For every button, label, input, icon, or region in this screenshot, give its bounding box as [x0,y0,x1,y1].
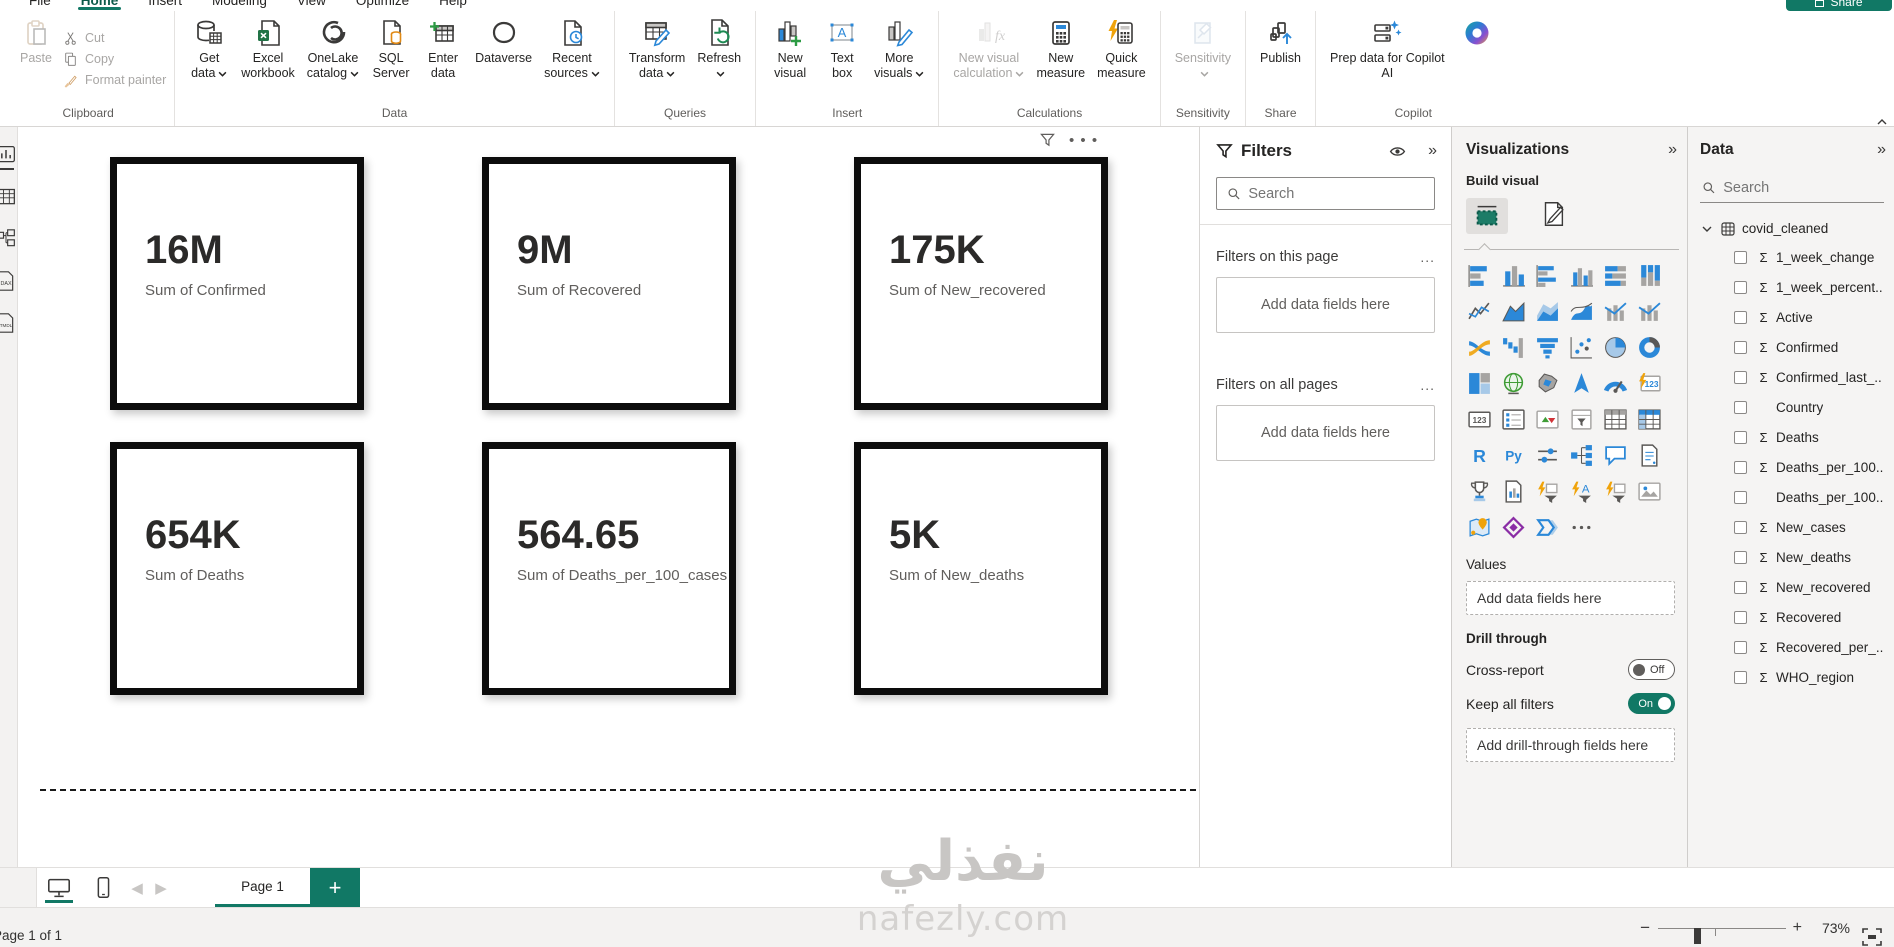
ribbon-dataverse-button[interactable]: Dataverse [469,15,538,68]
onelake-catalog-icon [317,17,349,49]
chevron-down-icon [666,71,675,77]
visual-area-chart[interactable] [1500,298,1527,325]
slicer-icon [1569,407,1594,432]
field-deaths-per-100[interactable]: Deaths_per_100.. [1700,482,1884,512]
chevron-down-icon [350,71,359,77]
sigma-icon: Σ [1756,580,1771,595]
visual-smart-narrative[interactable] [1636,442,1663,469]
hundred-stacked-area-chart-icon [1569,299,1594,324]
field-label: 1_week_percent.. [1776,280,1883,295]
sql-server-icon [375,17,407,49]
more-options-icon[interactable]: ... [1420,249,1435,265]
ribbon-group-label: Clipboard [62,103,113,123]
keep-all-filters-label: Keep all filters [1466,696,1554,712]
chevron-down-icon [1200,71,1209,77]
ribbon-prep-copilot-button[interactable]: Prep data for CopilotAI [1324,15,1451,83]
visual-scatter-chart[interactable] [1568,334,1595,361]
pie-chart-icon [1603,335,1628,360]
visual-paginated-report[interactable] [1500,478,1527,505]
svg-text:fx: fx [995,29,1005,44]
collapse-visualizations-icon[interactable]: » [1668,141,1675,159]
field-label: Confirmed [1776,340,1838,355]
filter-icon[interactable] [1040,133,1055,148]
card-visual-sum-of-recovered[interactable]: 9MSum of Recovered [482,157,736,410]
toggle-knob [1633,664,1645,676]
visual-decomposition-tree[interactable] [1568,442,1595,469]
report-view-button[interactable] [0,145,16,167]
data-title: Data [1700,141,1869,159]
data-search[interactable] [1700,173,1884,203]
ribbon-text-box-button[interactable]: ATextbox [816,15,868,83]
hundred-stacked-column-chart-icon [1637,263,1662,288]
report-canvas[interactable]: • • • 16MSum of Confirmed9MSum of Recove… [18,127,1200,867]
visual-power-automate[interactable] [1534,514,1561,541]
field-label: New_recovered [1776,580,1871,595]
page-bar-stub [0,868,37,907]
visual-r-script-visual[interactable]: R [1466,442,1493,469]
card-visual-sum-of-deaths[interactable]: 654KSum of Deaths [110,442,364,695]
ribbon-quick-measure-button[interactable]: Quickmeasure [1091,15,1152,83]
ribbon-copy-button[interactable]: Copy [62,51,166,68]
image-visual-icon [1637,479,1662,504]
ribbon-publish-button[interactable]: Publish [1254,15,1307,68]
arcgis-map-icon [1467,515,1492,540]
line-chart-icon [1467,299,1492,324]
card-value: 5K [889,511,1091,559]
gauge-icon [1603,371,1628,396]
menu-insert[interactable]: Insert [133,0,197,11]
visual-hundred-stacked-area-chart[interactable] [1568,298,1595,325]
field-new-recovered[interactable]: ΣNew_recovered [1700,572,1884,602]
chevron-down-icon [591,71,600,77]
transform-data-icon [641,17,673,49]
new-measure-icon [1045,17,1077,49]
zoom-in-button[interactable]: + [1793,919,1802,937]
waterfall-chart-icon [1501,335,1526,360]
tmdl-view-button[interactable]: TMDL [0,313,16,335]
visual-header: • • • [1040,133,1098,148]
visual-ribbon-chart[interactable] [1466,334,1493,361]
visualizations-title: Visualizations [1466,141,1660,159]
stacked-area-chart-icon [1535,299,1560,324]
visual-map[interactable] [1500,370,1527,397]
clustered-column-chart-icon [1569,263,1594,288]
visual-pie-chart[interactable] [1602,334,1629,361]
ribbon-onelake-catalog-button[interactable]: OneLakecatalog [301,15,365,83]
sigma-icon: Σ [1756,370,1771,385]
visual-qa-visual[interactable] [1602,442,1629,469]
map-icon [1501,371,1526,396]
mobile-layout-button[interactable] [81,868,125,907]
table-view-button[interactable] [0,187,16,209]
ribbon-new-measure-button[interactable]: Newmeasure [1030,15,1091,83]
svg-text:Py: Py [1505,449,1522,464]
all-pages-filters-dropzone[interactable]: Add data fields here [1216,405,1435,461]
build-visual-label: Build visual [1466,173,1675,188]
ribbon-group-share: PublishShare [1246,11,1316,126]
sigma-icon: Σ [1756,520,1771,535]
ribbon-group-insert: NewvisualATextboxMorevisualsInsert [756,11,939,126]
toggle-knob [1658,697,1671,710]
page-boundary [40,789,1196,791]
visual-clustered-column-chart[interactable] [1568,262,1595,289]
sigma-icon: Σ [1756,340,1771,355]
ribbon-group-label: Sensitivity [1176,103,1230,123]
ribbon-recent-sources-button[interactable]: Recentsources [538,15,606,83]
zoom-level: 73% [1822,920,1850,936]
visual-premium-text-visual[interactable]: A [1568,478,1595,505]
card-label: Sum of Deaths_per_100_cases [517,567,719,584]
recent-sources-icon [556,17,588,49]
ribbon-sql-server-button[interactable]: SQLServer [365,15,417,83]
paste-icon [20,17,52,49]
field-checkbox[interactable] [1734,401,1747,414]
previous-page-arrow[interactable]: ◀ [125,868,149,907]
field-checkbox[interactable] [1734,251,1747,264]
more-visuals-ellipsis-icon [1569,515,1594,540]
visual-donut-chart[interactable] [1636,334,1663,361]
clustered-bar-chart-icon [1535,263,1560,288]
filters-funnel-icon [1216,143,1233,160]
visual-stacked-column-chart[interactable] [1500,262,1527,289]
ribbon-refresh-button[interactable]: Refresh [691,15,747,83]
visual-hundred-stacked-bar-chart[interactable] [1602,262,1629,289]
filters-title: Filters [1241,141,1381,161]
zoom-slider-handle[interactable] [1694,928,1701,944]
smart-narrative-icon [1637,443,1662,468]
card-new-icon: 123 [1637,371,1662,396]
field-1-week-change[interactable]: Σ1_week_change [1700,242,1884,272]
share-icon [1815,0,1824,7]
visual-image-visual[interactable] [1636,478,1663,505]
ribbon-more-visuals-button[interactable]: Morevisuals [868,15,930,83]
field-label: New_deaths [1776,550,1851,565]
visual-python-visual[interactable]: Py [1500,442,1527,469]
desktop-layout-button[interactable] [37,868,81,907]
chevron-down-icon [1015,71,1024,77]
build-visual-tab[interactable] [1466,198,1508,234]
card-label: Sum of New_deaths [889,567,1091,584]
visual-premium-filter-visual[interactable] [1602,478,1629,505]
ribbon-enter-data-button[interactable]: Enterdata [417,15,469,83]
chevron-down-icon [915,71,924,77]
ribbon-new-visual-button[interactable]: Newvisual [764,15,816,83]
page-tab[interactable]: Page 1 [215,868,310,907]
visual-power-apps-premium[interactable] [1534,478,1561,505]
table-icon [1721,222,1735,236]
field-label: Deaths [1776,430,1819,445]
power-apps-premium-icon [1535,479,1560,504]
share-label: Share [1830,0,1862,9]
chevron-down-icon [716,71,725,77]
values-dropzone[interactable]: Add data fields here [1466,581,1675,615]
chevron-down-icon[interactable] [1700,222,1714,236]
field-label: Deaths_per_100.. [1776,460,1883,475]
field-checkbox[interactable] [1734,491,1747,504]
format-visual-tab[interactable] [1538,199,1568,234]
ribbon-transform-data-button[interactable]: Transformdata [623,15,692,83]
filters-search[interactable] [1216,177,1435,210]
azure-map-icon [1569,371,1594,396]
visual-metrics[interactable] [1466,478,1493,505]
filters-search-input[interactable] [1248,186,1424,202]
treemap-icon [1467,371,1492,396]
excel-workbook-icon [252,17,284,49]
visual-waterfall-chart[interactable] [1500,334,1527,361]
card-visual-sum-of-deaths-per-100-cases[interactable]: 564.65Sum of Deaths_per_100_cases [482,442,736,695]
get-data-icon [193,17,225,49]
visual-funnel-chart[interactable] [1534,334,1561,361]
data-pane: Data » covid_cleaned Σ1_week_changeΣ1_we… [1688,127,1894,867]
field-label: Country [1776,400,1823,415]
field-checkbox[interactable] [1734,431,1747,444]
field-checkbox[interactable] [1734,581,1747,594]
multi-row-card-icon [1501,407,1526,432]
next-page-arrow[interactable]: ▶ [149,868,173,907]
visual-matrix[interactable] [1636,406,1663,433]
sigma-icon: Σ [1756,430,1771,445]
donut-chart-icon [1637,335,1662,360]
ribbon-group-sensitivity: SensitivitySensitivity [1161,11,1246,126]
field-checkbox[interactable] [1734,671,1747,684]
ribbon-group-label: Data [382,103,407,123]
ribbon-group-calculations: fxNew visualcalculationNewmeasureQuickme… [939,11,1160,126]
sigma-icon: Σ [1756,310,1771,325]
field-new-cases[interactable]: ΣNew_cases [1700,512,1884,542]
card-visual-sum-of-new-recovered[interactable]: 175KSum of New_recovered [854,157,1108,410]
visual-power-apps[interactable] [1500,514,1527,541]
copy-icon [62,51,79,68]
field-label: Deaths_per_100.. [1776,490,1883,505]
qa-visual-icon [1603,443,1628,468]
field-checkbox[interactable] [1734,371,1747,384]
visualizations-pane: Visualizations » Build visual 123123RPyA… [1452,127,1688,867]
format-painter-icon [62,72,79,89]
more-options-icon[interactable]: ... [1420,377,1435,393]
filters-pane: Filters » Filters on this page ... Add d… [1200,127,1452,867]
field-checkbox[interactable] [1734,311,1747,324]
field-label: New_cases [1776,520,1846,535]
eye-icon[interactable] [1389,143,1406,160]
python-visual-icon: Py [1501,443,1526,468]
model-view-button[interactable] [0,229,16,251]
visual-slicer[interactable] [1568,406,1595,433]
area-chart-icon [1501,299,1526,324]
visual-parameter-slicer[interactable] [1534,442,1561,469]
visual-arcgis-map[interactable] [1466,514,1493,541]
card-label: Sum of New_recovered [889,282,1091,299]
field-label: Recovered_per_... [1776,640,1884,655]
new-visual-calculation-icon: fx [973,17,1005,49]
visual-treemap[interactable] [1466,370,1493,397]
new-visual-icon [774,17,806,49]
copilot-logo-icon [1461,17,1493,49]
zoom-slider-tick [1715,928,1716,936]
field-checkbox[interactable] [1734,611,1747,624]
card-value: 16M [145,226,347,274]
menu-modeling[interactable]: Modeling [197,0,282,11]
refresh-icon [703,17,735,49]
new-page-button[interactable]: + [310,868,360,907]
ribbon-group-label: Copilot [1395,103,1432,123]
zoom-slider-track[interactable] [1658,928,1786,929]
page-info: Page 1 of 1 [0,928,62,943]
field-active[interactable]: ΣActive [1700,302,1884,332]
enter-data-icon [427,17,459,49]
text-box-icon: A [826,17,858,49]
ribbon: PasteCutCopyFormat painterClipboardGetda… [0,11,1894,127]
main-area: DAX TMDL • • • 16MSum of Confirmed9MSum … [0,127,1894,867]
visual-kpi[interactable] [1534,406,1561,433]
sigma-icon: Σ [1756,460,1771,475]
cut-icon [62,30,79,47]
visual-stacked-bar-chart[interactable] [1466,262,1493,289]
svg-text:DAX: DAX [0,281,12,287]
collapse-ribbon-icon[interactable] [1876,113,1888,123]
page-filters-dropzone[interactable]: Add data fields here [1216,277,1435,333]
visual-multi-row-card[interactable] [1500,406,1527,433]
sigma-icon: Σ [1756,670,1771,685]
visual-line-and-stacked-column-chart[interactable] [1602,298,1629,325]
card-value: 9M [517,226,719,274]
stacked-bar-chart-icon [1467,263,1492,288]
field-deaths-per-100[interactable]: ΣDeaths_per_100.. [1700,452,1884,482]
card-value: 564.65 [517,511,719,559]
filters-on-page-label: Filters on this page [1216,249,1339,265]
field-recovered-per[interactable]: ΣRecovered_per_... [1700,632,1884,662]
menu-help[interactable]: Help [424,0,482,11]
visual-card-new[interactable]: 123 [1636,370,1663,397]
ribbon-group-label: Insert [832,103,862,123]
field-checkbox[interactable] [1734,341,1747,354]
field-checkbox[interactable] [1734,461,1747,474]
data-search-input[interactable] [1723,180,1882,196]
visual-filled-map[interactable] [1534,370,1561,397]
visual-more-visuals-ellipsis[interactable] [1568,514,1595,541]
menu-bar: FileHomeInsertModelingViewOptimizeHelp S… [0,0,1894,11]
ribbon-sensitivity-button[interactable]: Sensitivity [1169,15,1237,83]
stacked-column-chart-icon [1501,263,1526,288]
visual-hundred-stacked-column-chart[interactable] [1636,262,1663,289]
quick-measure-icon [1105,17,1137,49]
more-visuals-icon [883,17,915,49]
ribbon-cut-button[interactable]: Cut [62,30,166,47]
more-options-icon[interactable]: • • • [1069,136,1098,146]
ribbon-excel-workbook-button[interactable]: Excelworkbook [235,15,301,83]
cross-report-toggle[interactable]: Off [1628,659,1675,680]
field-who-region[interactable]: ΣWHO_region [1700,662,1884,692]
share-button[interactable]: Share [1786,0,1892,11]
field-checkbox[interactable] [1734,641,1747,654]
ribbon-copilot-logo-button[interactable] [1451,15,1503,53]
table-covid-cleaned[interactable]: covid_cleaned [1700,221,1884,236]
drill-through-dropzone[interactable]: Add drill-through fields here [1466,728,1675,762]
ribbon-paste-button[interactable]: Paste [10,15,62,68]
search-icon [1702,180,1715,195]
ribbon-get-data-button[interactable]: Getdata [183,15,235,83]
field-checkbox[interactable] [1734,521,1747,534]
field-checkbox[interactable] [1734,281,1747,294]
sigma-icon: Σ [1756,550,1771,565]
menu-view[interactable]: View [282,0,341,11]
scatter-chart-icon [1569,335,1594,360]
field-confirmed-last[interactable]: ΣConfirmed_last_.. [1700,362,1884,392]
powerbi-desktop-window: FileHomeInsertModelingViewOptimizeHelp S… [0,0,1894,947]
field-country[interactable]: Country [1700,392,1884,422]
visual-stacked-area-chart[interactable] [1534,298,1561,325]
ribbon-new-visual-calculation-button[interactable]: fxNew visualcalculation [947,15,1030,83]
keep-all-filters-toggle[interactable]: On [1628,693,1675,714]
hundred-stacked-bar-chart-icon [1603,263,1628,288]
card-visual-sum-of-new-deaths[interactable]: 5KSum of New_deaths [854,442,1108,695]
svg-text:123: 123 [1473,415,1487,425]
ribbon-group-label: Calculations [1017,103,1082,123]
field-deaths[interactable]: ΣDeaths [1700,422,1884,452]
svg-text:A: A [838,25,847,40]
visual-table[interactable] [1602,406,1629,433]
collapse-data-icon[interactable]: » [1877,141,1884,159]
chevron-down-icon [218,71,227,77]
menu-home[interactable]: Home [66,0,134,11]
field-recovered[interactable]: ΣRecovered [1700,602,1884,632]
visual-card[interactable]: 123 [1466,406,1493,433]
sensitivity-icon [1187,17,1219,49]
field-label: Confirmed_last_.. [1776,370,1882,385]
card-visual-sum-of-confirmed[interactable]: 16MSum of Confirmed [110,157,364,410]
visual-azure-map[interactable] [1568,370,1595,397]
ribbon-group-label: Queries [664,103,706,123]
view-rail: DAX TMDL [0,127,18,867]
paginated-report-icon [1501,479,1526,504]
card-label: Sum of Recovered [517,282,719,299]
field-confirmed[interactable]: ΣConfirmed [1700,332,1884,362]
ribbon-group-clipboard: PasteCutCopyFormat painterClipboard [2,11,175,126]
collapse-filters-icon[interactable]: » [1428,142,1435,160]
field-label: WHO_region [1776,670,1854,685]
zoom-out-button[interactable]: − [1640,918,1650,938]
prep-copilot-icon [1371,17,1403,49]
field-1-week-percent[interactable]: Σ1_week_percent.. [1700,272,1884,302]
fit-to-page-icon[interactable] [1862,928,1882,946]
card-label: Sum of Deaths [145,567,347,584]
sigma-icon: Σ [1756,610,1771,625]
card-label: Sum of Confirmed [145,282,347,299]
sigma-icon: Σ [1756,280,1771,295]
visual-gauge[interactable] [1602,370,1629,397]
ribbon-format-painter-button[interactable]: Format painter [62,72,166,89]
field-label: Active [1776,310,1813,325]
premium-text-visual-icon: A [1569,479,1594,504]
dax-query-view-button[interactable]: DAX [0,271,16,293]
menu-file[interactable]: File [14,0,66,11]
ribbon-group-label: Share [1264,103,1296,123]
r-script-visual-icon: R [1467,443,1492,468]
ribbon-group-data: GetdataExcelworkbookOneLakecatalogSQLSer… [175,11,615,126]
table-icon [1603,407,1628,432]
field-label: Recovered [1776,610,1841,625]
field-new-deaths[interactable]: ΣNew_deaths [1700,542,1884,572]
svg-text:A: A [1582,484,1590,496]
field-checkbox[interactable] [1734,551,1747,564]
visual-line-chart[interactable] [1466,298,1493,325]
sigma-icon: Σ [1756,640,1771,655]
visual-clustered-bar-chart[interactable] [1534,262,1561,289]
menu-optimize[interactable]: Optimize [341,0,424,11]
filled-map-icon [1535,371,1560,396]
ribbon-chart-icon [1467,335,1492,360]
visual-line-and-clustered-column-chart[interactable] [1636,298,1663,325]
power-automate-icon [1535,515,1560,540]
